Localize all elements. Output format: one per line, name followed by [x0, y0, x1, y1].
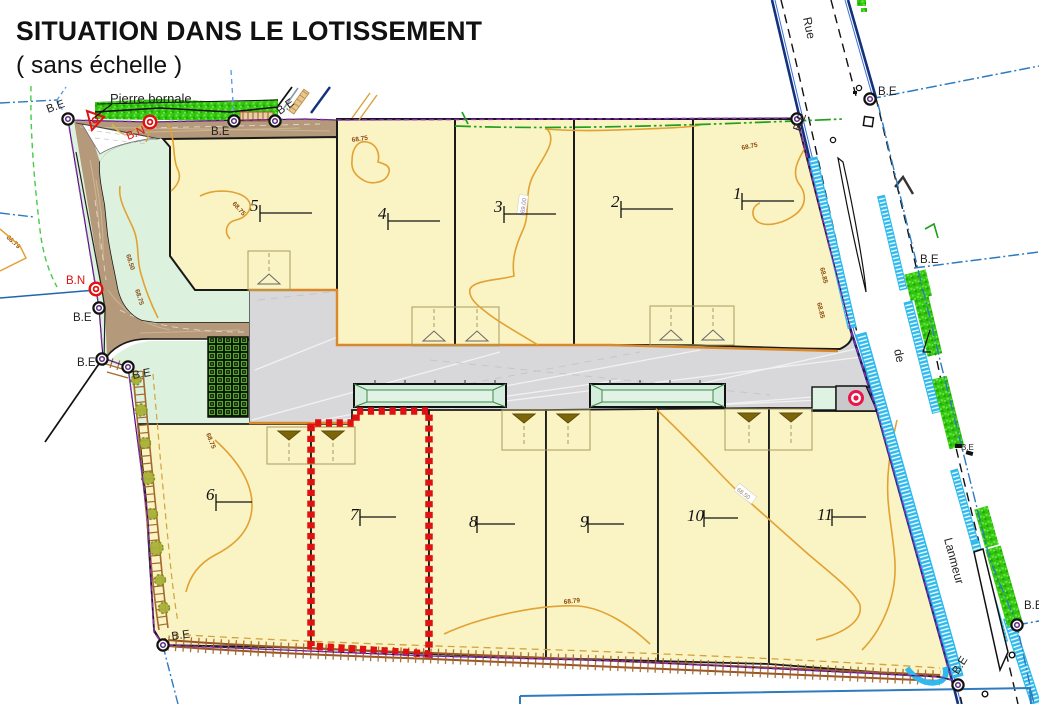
svg-text:5: 5	[250, 196, 259, 215]
svg-text:B.E: B.E	[920, 254, 939, 266]
svg-text:6: 6	[206, 485, 215, 504]
svg-text:B.N: B.N	[66, 275, 85, 287]
svg-text:B.E: B.E	[961, 443, 974, 452]
svg-text:( sans échelle ): ( sans échelle )	[16, 52, 182, 79]
svg-text:SITUATION DANS LE LOTISSEMENT: SITUATION DANS LE LOTISSEMENT	[16, 16, 482, 46]
svg-text:B.E: B.E	[77, 357, 96, 369]
svg-text:3: 3	[493, 197, 503, 216]
svg-text:2: 2	[611, 192, 620, 211]
svg-text:B.E: B.E	[211, 126, 230, 138]
svg-text:1: 1	[733, 184, 742, 203]
svg-text:11: 11	[817, 505, 833, 524]
svg-text:Pierre bornale: Pierre bornale	[110, 91, 192, 106]
svg-text:10: 10	[687, 506, 705, 525]
svg-text:B.E: B.E	[73, 312, 92, 324]
svg-text:B.E: B.E	[878, 86, 897, 98]
svg-text:4: 4	[378, 204, 387, 223]
svg-text:B.E: B.E	[1024, 600, 1039, 612]
